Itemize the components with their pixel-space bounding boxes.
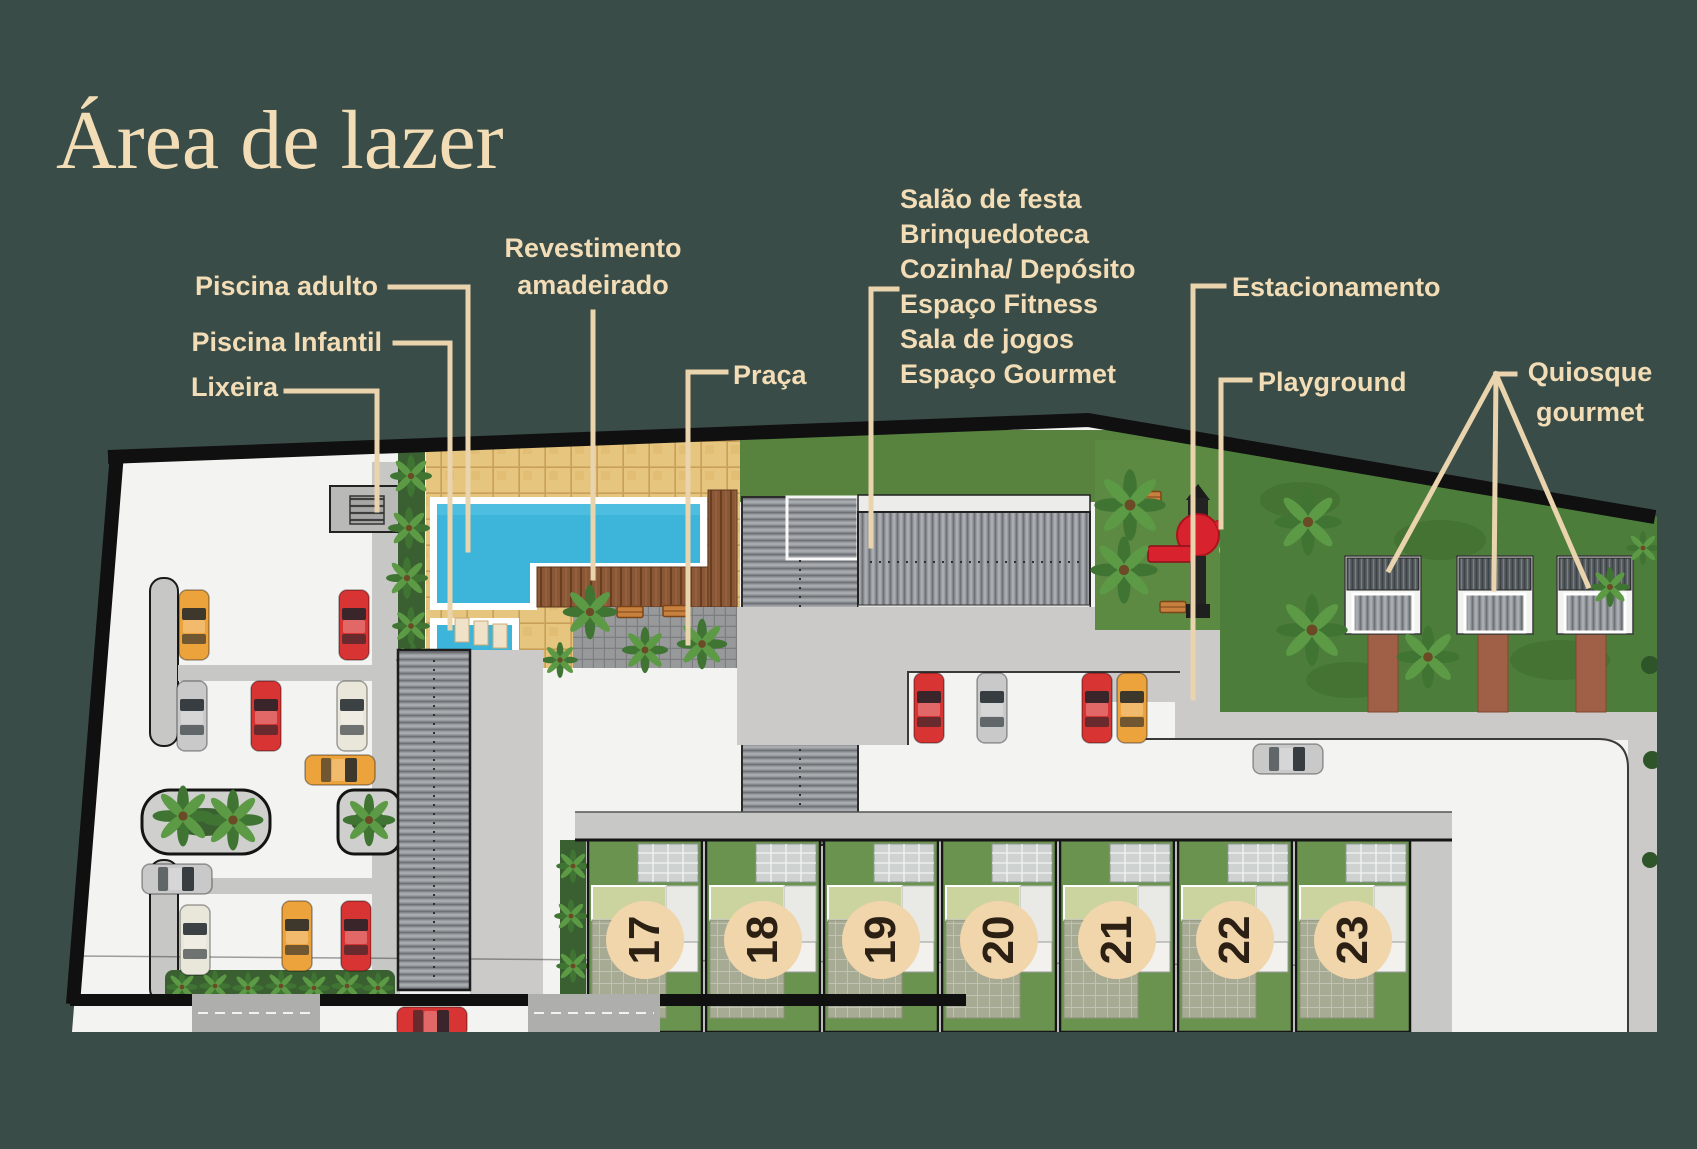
callout-amenities-list: Salão de festa Brinquedoteca Cozinha/ De… bbox=[900, 182, 1136, 392]
background-mask-bottom bbox=[0, 1032, 1697, 1149]
brick-path bbox=[1478, 634, 1508, 712]
palm-island bbox=[142, 786, 270, 854]
walkway bbox=[1410, 840, 1452, 1032]
amenity-sala-de-jogos: Sala de jogos bbox=[900, 322, 1136, 357]
walkway bbox=[178, 665, 402, 681]
amenity-brinquedoteca: Brinquedoteca bbox=[900, 217, 1136, 252]
page-title: Área de lazer bbox=[56, 92, 504, 189]
brick-path bbox=[1576, 634, 1606, 712]
side-building-roof bbox=[398, 650, 470, 990]
walkway bbox=[150, 578, 178, 746]
amenity-espaco-gourmet: Espaço Gourmet bbox=[900, 357, 1136, 392]
palm-island bbox=[338, 790, 400, 854]
amenity-cozinha-deposito: Cozinha/ Depósito bbox=[900, 252, 1136, 287]
amenity-salao-de-festa: Salão de festa bbox=[900, 182, 1136, 217]
house-number-21: 21 bbox=[1087, 910, 1147, 970]
callout-revestimento-line1: Revestimento bbox=[458, 230, 728, 267]
house-number-17: 17 bbox=[615, 910, 675, 970]
callout-lixeira: Lixeira bbox=[120, 372, 278, 403]
site-plan-page: Área de lazer Piscina adulto Piscina Inf… bbox=[0, 0, 1697, 1149]
callout-revestimento-line2: amadeirado bbox=[458, 267, 728, 304]
amenity-espaco-fitness: Espaço Fitness bbox=[900, 287, 1136, 322]
callout-praca: Praça bbox=[733, 360, 807, 391]
brick-path bbox=[1368, 634, 1398, 712]
main-amenities-building-roof bbox=[858, 495, 1090, 617]
callout-piscina-infantil: Piscina Infantil bbox=[120, 327, 382, 358]
house-number-23: 23 bbox=[1323, 910, 1383, 970]
trash-area bbox=[330, 486, 402, 532]
callout-estacionamento: Estacionamento bbox=[1232, 272, 1441, 303]
callout-piscina-adulto: Piscina adulto bbox=[120, 271, 378, 302]
callout-quiosque-line2: gourmet bbox=[1512, 392, 1668, 432]
house-number-19: 19 bbox=[851, 910, 911, 970]
callout-quiosque-gourmet: Quiosque gourmet bbox=[1512, 352, 1668, 432]
house-number-22: 22 bbox=[1205, 910, 1265, 970]
callout-playground: Playground bbox=[1258, 367, 1407, 398]
sidewalk bbox=[575, 812, 1452, 840]
leader-quiosque-2 bbox=[1494, 374, 1496, 589]
callout-revestimento: Revestimento amadeirado bbox=[458, 230, 728, 304]
callout-quiosque-line1: Quiosque bbox=[1512, 352, 1668, 392]
house-number-20: 20 bbox=[969, 910, 1029, 970]
house-number-18: 18 bbox=[733, 910, 793, 970]
